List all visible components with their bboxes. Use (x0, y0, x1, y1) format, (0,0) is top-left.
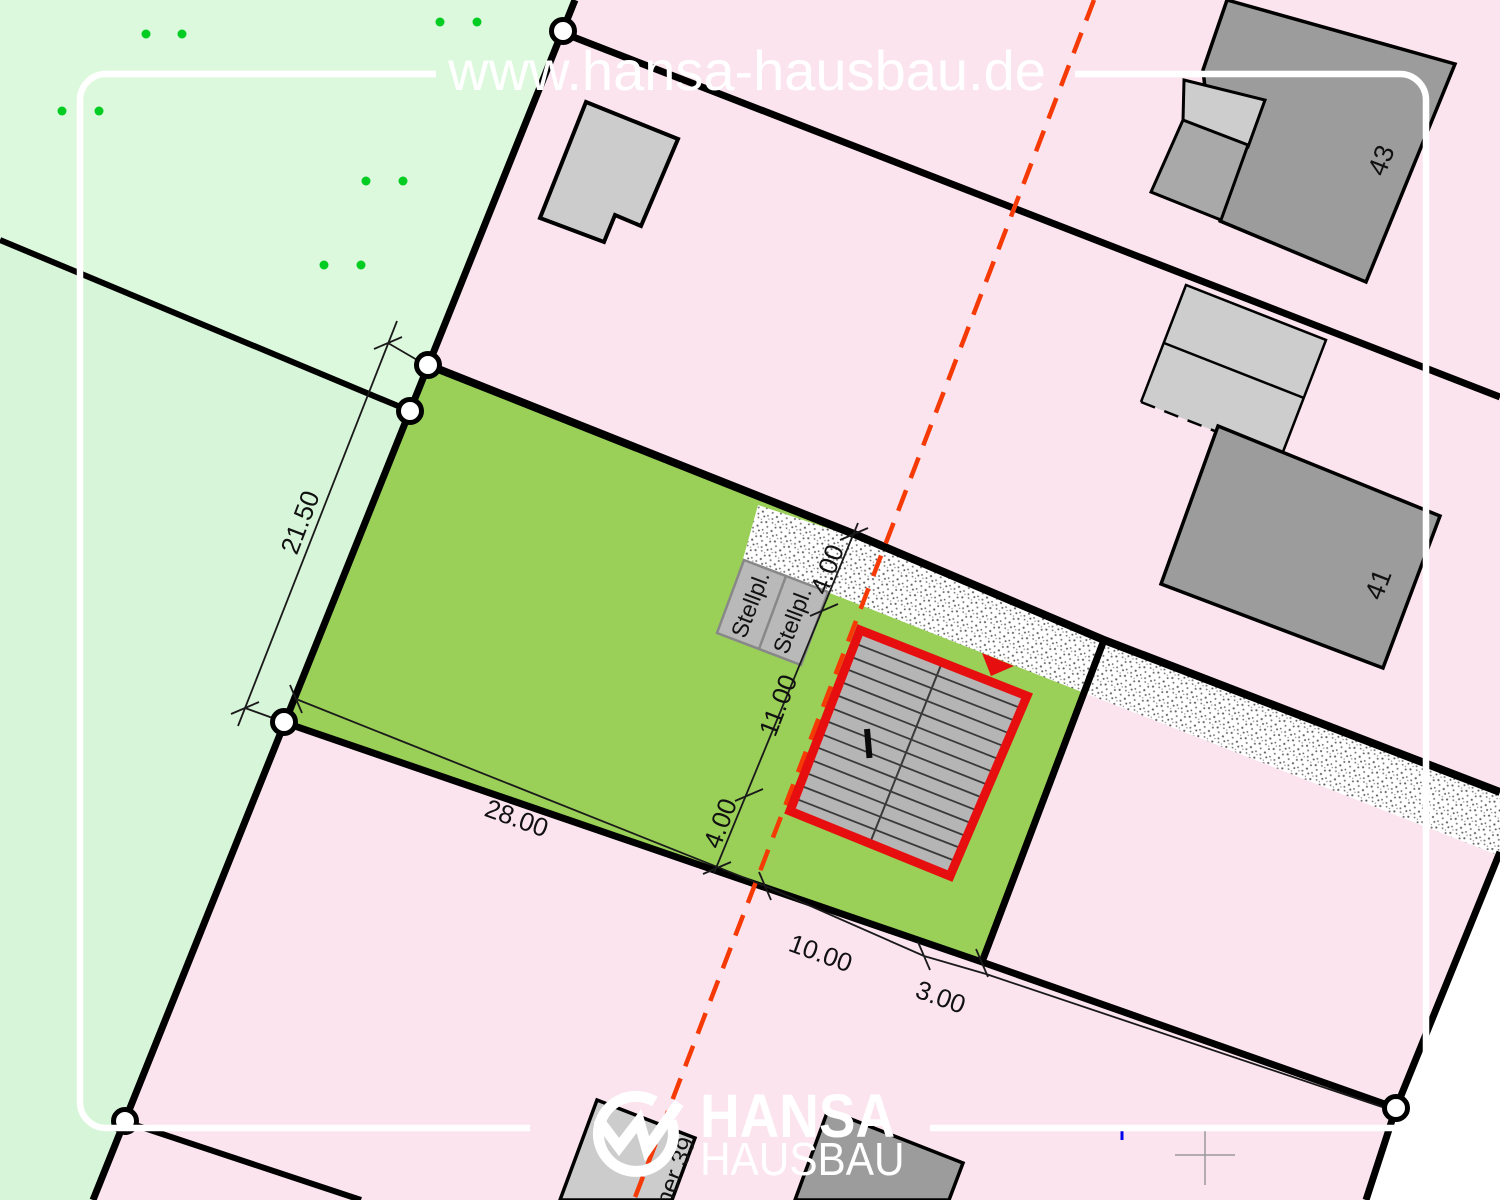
svg-text:www.hansa-hausbau.de: www.hansa-hausbau.de (447, 39, 1046, 102)
svg-text:HAUSBAU: HAUSBAU (700, 1134, 905, 1185)
